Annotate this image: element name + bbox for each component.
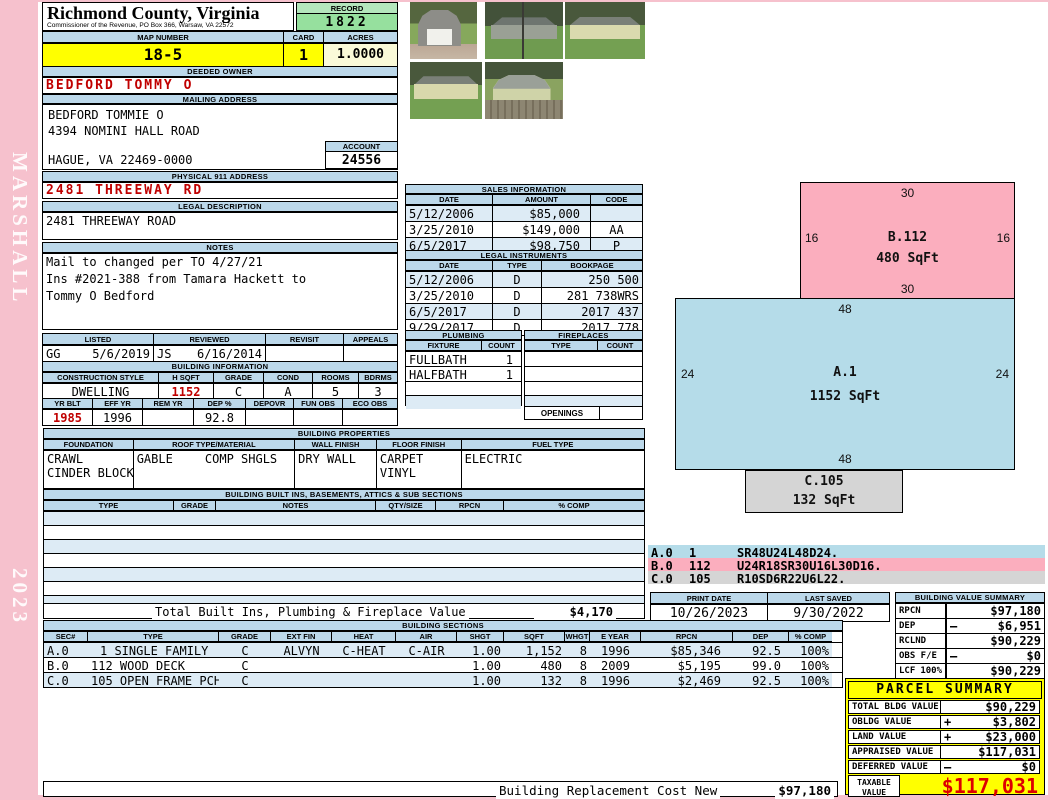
empty-row (406, 396, 521, 409)
grade-value: C (214, 384, 264, 398)
legend-path: SR48U24L48D24. (734, 545, 841, 558)
map-number-value: 18-5 (43, 44, 284, 66)
yrblt-label: YR BLT (43, 399, 93, 409)
effyr-value: 1996 (93, 410, 143, 425)
parcel-row: TOTAL BLDG VALUE $90,229 (848, 700, 1042, 714)
shed-roof (493, 75, 551, 89)
sales-col-code: CODE (591, 195, 642, 205)
bdrms-label: BDRMS (359, 373, 397, 383)
plumbing-row: FULLBATH 1 (406, 352, 521, 367)
parcel-label: DEFERRED VALUE (848, 760, 941, 774)
fireplaces-title: FIREPLACES (524, 330, 643, 340)
sketch-section-c: C.105 132 SqFt (745, 470, 903, 513)
style-value: DWELLING (43, 384, 159, 398)
instr-type: D (493, 304, 542, 319)
fuel-value: ELECTRIC (462, 451, 644, 488)
account-value: 24556 (325, 152, 398, 169)
last-saved-label: LAST SAVED (768, 593, 889, 604)
built-ins-table: TYPE GRADE NOTES QTY/SIZE RPCN % COMP (43, 500, 645, 609)
sale-code: AA (591, 222, 642, 237)
instr-date: 5/12/2006 (406, 272, 493, 287)
appeals-label: APPEALS (344, 334, 397, 345)
openings-label: OPENINGS (524, 406, 600, 420)
empty-row (44, 568, 644, 582)
deeded-owner-value: BEDFORD TOMMY O (42, 77, 398, 94)
summary-row: RCLND $90,229 (896, 634, 1044, 649)
legend-code: 105 (686, 571, 734, 584)
fixture-value: FULLBATH (406, 352, 482, 366)
assessment-record-page: { "sidebar": { "company": "MARSHALL", "y… (0, 0, 1050, 800)
fireplaces-table: TYPE COUNT (524, 340, 643, 406)
listed-value: GG 5/6/2019 (43, 346, 154, 362)
empty-row (44, 582, 644, 596)
parcel-value: $0 (1022, 760, 1036, 774)
roof-label: ROOF TYPE/MATERIAL (134, 440, 295, 450)
house-body (414, 84, 477, 99)
plumbing-table: FIXTURE COUNT FULLBATH 1 HALFBATH 1 (405, 340, 522, 406)
count-value: 1 (482, 352, 521, 366)
instr-type: D (493, 272, 542, 287)
physical-address-label: PHYSICAL 911 ADDRESS (42, 171, 398, 182)
revisit-value (266, 346, 344, 362)
notes-box: Mail to changed per TO 4/27/21 Ins #2021… (42, 253, 398, 330)
yrblt-value: 1985 (43, 410, 93, 425)
sketch-legend: A.0 1 SR48U24L48D24. B.0 112 U24R18SR30U… (648, 545, 1045, 584)
instr-date: 3/25/2010 (406, 288, 493, 303)
dep-value: 92.8 (194, 410, 246, 425)
funobs-value (294, 410, 343, 425)
summary-row: DEP – $6,951 (896, 619, 1044, 634)
mail-street: 4394 NOMINI HALL ROAD (45, 123, 203, 139)
rooms-label: ROOMS (313, 373, 359, 383)
summary-op: – (950, 649, 957, 663)
built-ins-total-row: Total Built Ins, Plumbing & Fireplace Va… (43, 603, 645, 619)
built-ins-total-value: $4,170 (534, 604, 616, 620)
dim-label: 16 (805, 231, 818, 245)
sketch-section-id: C.105 (804, 474, 843, 489)
legend-path: R10SD6R22U6L22. (734, 571, 848, 584)
foundation-line: CINDER BLOCK (47, 466, 130, 480)
legend-row: B.0 112 U24R18SR30U16L30D16. (648, 558, 1045, 571)
utility-pole (522, 2, 524, 59)
mailing-address-box: BEDFORD TOMMIE O 4394 NOMINI HALL ROAD H… (42, 104, 398, 170)
dim-label: 16 (997, 231, 1010, 245)
reviewed-date: 6/16/2014 (197, 347, 262, 361)
sale-code (591, 206, 642, 221)
bs-col: DEP (733, 632, 789, 642)
instr-type: D (493, 288, 542, 303)
cond-value: A (264, 384, 313, 398)
sketch-section-a: 48 24 A.1 24 1152 SqFt 48 (675, 298, 1015, 470)
bs-col: TYPE (88, 632, 219, 642)
instrument-row: 5/12/2006 D 250 500 (406, 272, 642, 288)
building-section-row: B.0 112 WOOD DECK C 1.00 480 8 2009 $5,1… (44, 658, 842, 673)
cond-label: COND (264, 373, 313, 383)
photo-house-side[interactable] (565, 2, 645, 59)
sales-row: 5/12/2006 $85,000 (406, 206, 642, 222)
parcel-value-cell: $117,031 (941, 745, 1040, 759)
fireplace-count-label: COUNT (598, 341, 642, 351)
summary-label: DEP (899, 621, 915, 631)
building-properties-title: BUILDING PROPERTIES (43, 428, 645, 439)
bs-col: WHGT (565, 632, 590, 642)
physical-address-value: 2481 THREEWAY RD (42, 182, 398, 199)
building-section-row: C.0 105 OPEN FRAME PCH C 1.00 132 8 1996… (44, 673, 842, 687)
taxable-row: TAXABLE VALUE $117,031 (848, 775, 1042, 798)
parcel-op: + (944, 715, 951, 729)
summary-label: RPCN (899, 606, 921, 616)
built-ins-title: BUILDING BUILT INS, BASEMENTS, ATTICS & … (43, 489, 645, 500)
sales-row: 3/25/2010 $149,000 AA (406, 222, 642, 238)
dim-label: 48 (838, 302, 851, 316)
record-label: RECORD (296, 2, 398, 14)
taxable-label: TAXABLE VALUE (848, 775, 900, 797)
funobs-label: FUN OBS (294, 399, 343, 409)
reviewed-label: REVIEWED (154, 334, 266, 345)
parcel-value: $90,229 (985, 700, 1036, 714)
parcel-label: OBLDG VALUE (848, 715, 941, 729)
fixture-label: FIXTURE (406, 341, 482, 351)
summary-row: LCF 100% $90,229 (896, 664, 1044, 678)
sale-date: 5/12/2006 (406, 206, 493, 221)
builtins-col-comp: % COMP (504, 501, 644, 511)
building-section-row: A.0 1 SINGLE FAMILY C ALVYN C-HEAT C-AIR… (44, 643, 842, 658)
bs-col: EXT FIN (271, 632, 332, 642)
sketch-area: 30 16 B.112 16 480 SqFt 30 48 24 A.1 24 … (658, 2, 1048, 542)
replacement-cost-row: Building Replacement Cost New $97,180 (43, 781, 838, 797)
built-ins-total-label: Total Built Ins, Plumbing & Fireplace Va… (152, 604, 469, 620)
sales-col-amount: AMOUNT (493, 195, 591, 205)
bdrms-value: 3 (359, 384, 397, 398)
notes-line: Tommy O Bedford (43, 288, 397, 305)
foundation-line: CRAWL (47, 452, 130, 466)
instrument-row: 3/25/2010 D 281 738WRS (406, 288, 642, 304)
sketch-section-b: 30 16 B.112 16 480 SqFt 30 (800, 182, 1015, 299)
garage-door (427, 29, 453, 45)
deeded-owner-label: DEEDED OWNER (42, 66, 398, 77)
ecoobs-label: ECO OBS (343, 399, 397, 409)
photo-house-rear[interactable] (410, 62, 482, 119)
map-number-label: MAP NUMBER (43, 32, 284, 43)
roof-type: GABLE (137, 452, 173, 466)
listed-by: GG (46, 347, 60, 361)
record-box: RECORD 1822 (296, 2, 398, 31)
bs-col: HEAT (332, 632, 396, 642)
parcel-row: APPRAISED VALUE $117,031 (848, 745, 1042, 759)
parcel-row: DEFERRED VALUE – $0 (848, 760, 1042, 774)
instr-col-date: DATE (406, 261, 493, 271)
parcel-value-cell: + $3,802 (941, 715, 1040, 729)
sidebar: MARSHALL 2023 (0, 0, 38, 800)
value-summary-table: RPCN $97,180 DEP – $6,951 RCLND (895, 603, 1045, 679)
year-watermark: 2023 (7, 568, 32, 626)
empty-row (525, 382, 642, 396)
remyr-value (143, 410, 194, 425)
last-saved-value: 9/30/2022 (768, 605, 889, 621)
dim-label: 24 (681, 367, 694, 381)
sketch-section-id: B.112 (888, 230, 927, 245)
building-info-title: BUILDING INFORMATION (42, 361, 398, 372)
legend-sec: B.0 (648, 558, 686, 571)
bs-col: SEC# (44, 632, 88, 642)
sketch-section-sqft: 132 SqFt (793, 493, 856, 508)
notes-line: Ins #2021-388 from Tamara Hackett to (43, 271, 397, 288)
summary-label: RCLND (899, 636, 926, 646)
instruments-title: LEGAL INSTRUMENTS (405, 250, 643, 260)
hsqft-label: H SQFT (159, 373, 214, 383)
empty-row (44, 540, 644, 554)
summary-value: $97,180 (990, 604, 1041, 618)
empty-row (525, 352, 642, 367)
building-sections-table: SEC# TYPE GRADE EXT FIN HEAT AIR SHGT SQ… (43, 631, 843, 688)
wall-label: WALL FINISH (295, 440, 377, 450)
instr-bookpage: 281 738WRS (542, 288, 642, 303)
taxable-value: $117,031 (900, 775, 1040, 798)
mail-name: BEDFORD TOMMIE O (45, 107, 167, 123)
floor-line: VINYL (380, 466, 458, 480)
hsqft-value: 1152 (159, 384, 214, 398)
dim-label: 48 (838, 452, 851, 466)
sketch-section-sqft: 480 SqFt (876, 251, 939, 266)
record-card: Richmond County, Virginia Commissioner o… (38, 2, 1048, 795)
parcel-value: $3,802 (993, 715, 1036, 729)
print-date-value: 10/26/2023 (651, 605, 768, 621)
dim-label: 30 (901, 282, 914, 296)
listed-date: 5/6/2019 (92, 347, 150, 361)
sales-title: SALES INFORMATION (405, 184, 643, 194)
instruments-table: DATE TYPE BOOKPAGE 5/12/2006 D 250 500 3… (405, 260, 643, 336)
openings-value (599, 406, 643, 420)
instr-col-bookpage: BOOKPAGE (542, 261, 642, 271)
plumbing-title: PLUMBING (405, 330, 522, 340)
print-date-label: PRINT DATE (651, 593, 768, 604)
legend-row: C.0 105 R10SD6R22U6L22. (648, 571, 1045, 584)
parcel-label: LAND VALUE (848, 730, 941, 744)
building-properties-table: FOUNDATION ROOF TYPE/MATERIAL WALL FINIS… (43, 439, 645, 489)
photo-house-front[interactable] (485, 2, 563, 59)
bs-col: AIR (396, 632, 457, 642)
wood-fence (485, 100, 563, 119)
county-header: Richmond County, Virginia Commissioner o… (42, 2, 294, 31)
replacement-cost-value: $97,180 (775, 782, 834, 799)
parcel-value: $117,031 (978, 745, 1036, 759)
print-info: PRINT DATE LAST SAVED 10/26/2023 9/30/20… (650, 592, 890, 622)
legend-code: 112 (686, 558, 734, 571)
card-label: CARD (284, 32, 324, 43)
notes-line: Mail to changed per TO 4/27/21 (43, 254, 397, 271)
parcel-op: – (944, 760, 951, 774)
effyr-label: EFF YR (93, 399, 143, 409)
parcel-row: OBLDG VALUE + $3,802 (848, 715, 1042, 729)
summary-row: OBS F/E – $0 (896, 649, 1044, 664)
ecoobs-value (343, 410, 397, 425)
builtins-col-grade: GRADE (174, 501, 216, 511)
parcel-label: TOTAL BLDG VALUE (848, 700, 941, 714)
rooms-value: 5 (313, 384, 359, 398)
photo-shed[interactable] (485, 62, 563, 119)
fixture-value: HALFBATH (406, 367, 482, 381)
summary-value: $0 (1027, 649, 1041, 663)
instr-date: 6/5/2017 (406, 304, 493, 319)
building-info-table: CONSTRUCTION STYLE H SQFT GRADE COND ROO… (42, 372, 398, 426)
reviewed-value: JS 6/16/2014 (154, 346, 266, 362)
listed-label: LISTED (43, 334, 154, 345)
dim-label: 24 (996, 367, 1009, 381)
depovr-value (246, 410, 294, 425)
record-value: 1822 (296, 14, 398, 31)
roof-material: COMP SHGLS (205, 452, 291, 466)
legend-row: A.0 1 SR48U24L48D24. (648, 545, 1045, 558)
roof-value: GABLE COMP SHGLS (134, 451, 295, 488)
legal-description-label: LEGAL DESCRIPTION (42, 201, 398, 212)
parcel-row: LAND VALUE + $23,000 (848, 730, 1042, 744)
legend-path: U24R18SR30U16L30D16. (734, 558, 885, 571)
builtins-col-notes: NOTES (216, 501, 376, 511)
summary-label: LCF (899, 666, 915, 676)
bs-col: SQFT (504, 632, 565, 642)
appeals-value (344, 346, 397, 362)
legend-code: 1 (686, 545, 734, 558)
parcel-value-cell: – $0 (941, 760, 1040, 774)
reviewed-by: JS (157, 347, 171, 361)
bs-col: E YEAR (590, 632, 641, 642)
notes-label: NOTES (42, 242, 398, 253)
sketch-section-sqft: 1152 SqFt (810, 389, 880, 404)
sales-col-date: DATE (406, 195, 493, 205)
floor-line: CARPET (380, 452, 458, 466)
account-box: ACCOUNT 24556 (325, 141, 398, 170)
empty-row (44, 554, 644, 568)
mail-city: HAGUE, VA 22469-0000 (45, 152, 196, 168)
fireplace-type-label: TYPE (525, 341, 598, 351)
card-value: 1 (284, 44, 324, 66)
garage-building (418, 10, 461, 46)
summary-pct: 100% (920, 666, 942, 676)
parcel-value-cell: + $23,000 (941, 730, 1040, 744)
mailing-address-label: MAILING ADDRESS (42, 94, 398, 104)
building-sections-title: BUILDING SECTIONS (43, 620, 843, 631)
bs-col: SHGT (457, 632, 504, 642)
bs-col: RPCN (641, 632, 733, 642)
parcel-summary: PARCEL SUMMARY TOTAL BLDG VALUE $90,229 … (845, 678, 1045, 795)
builtins-col-rpcn: RPCN (436, 501, 504, 511)
summary-value: $90,229 (990, 634, 1041, 648)
acres-label: ACRES (324, 32, 397, 43)
foundation-label: FOUNDATION (44, 440, 134, 450)
parcel-summary-title: PARCEL SUMMARY (848, 681, 1042, 699)
remyr-label: REM YR (143, 399, 194, 409)
parcel-value: $23,000 (985, 730, 1036, 744)
grade-label: GRADE (214, 373, 264, 383)
sale-amount: $149,000 (493, 222, 591, 237)
fuel-label: FUEL TYPE (462, 440, 644, 450)
value-summary-title: BUILDING VALUE SUMMARY (895, 592, 1045, 603)
replacement-cost-label: Building Replacement Cost New (496, 782, 720, 799)
builtins-col-qty: QTY/SIZE (376, 501, 436, 511)
style-label: CONSTRUCTION STYLE (43, 373, 159, 383)
revisit-label: REVISIT (266, 334, 344, 345)
house-body (570, 25, 640, 39)
sketch-section-id: A.1 (833, 365, 856, 380)
empty-row (44, 526, 644, 540)
instrument-row: 6/5/2017 D 2017 437 (406, 304, 642, 320)
commissioner-subtitle: Commissioner of the Revenue, PO Box 366,… (47, 22, 289, 29)
summary-value: $90,229 (990, 664, 1041, 678)
summary-value: $6,951 (998, 619, 1041, 633)
sale-date: 3/25/2010 (406, 222, 493, 237)
dep-label: DEP % (194, 399, 246, 409)
photo-garage[interactable] (410, 2, 477, 59)
dim-label: 30 (901, 186, 914, 200)
sale-amount: $85,000 (493, 206, 591, 221)
parcel-label: APPRAISED VALUE (848, 745, 941, 759)
floor-label: FLOOR FINISH (377, 440, 462, 450)
legal-description-value: 2481 THREEWAY ROAD (42, 212, 398, 240)
plumbing-row: HALFBATH 1 (406, 367, 521, 382)
summary-label: OBS F/E (899, 651, 937, 661)
acres-value: 1.0000 (324, 44, 397, 66)
legend-sec: A.0 (648, 545, 686, 558)
vendor-watermark: MARSHALL (7, 152, 32, 305)
bs-col: GRADE (219, 632, 271, 642)
builtins-col-type: TYPE (44, 501, 174, 511)
parcel-op: + (944, 730, 951, 744)
empty-row (525, 367, 642, 382)
review-table: LISTED REVIEWED REVISIT APPEALS GG 5/6/2… (42, 333, 398, 363)
bs-col: % COMP (789, 632, 832, 642)
instr-bookpage: 2017 437 (542, 304, 642, 319)
depovr-label: DEPOVR (246, 399, 294, 409)
instr-col-type: TYPE (493, 261, 542, 271)
parcel-value-cell: $90,229 (941, 700, 1040, 714)
empty-row (406, 382, 521, 396)
floor-value: CARPET VINYL (377, 451, 462, 488)
sales-table: DATE AMOUNT CODE 5/12/2006 $85,000 3/25/… (405, 194, 643, 254)
summary-row: RPCN $97,180 (896, 604, 1044, 619)
count-label: COUNT (482, 341, 521, 351)
county-title: Richmond County, Virginia (47, 4, 289, 22)
summary-op: – (950, 619, 957, 633)
count-value: 1 (482, 367, 521, 381)
empty-row (44, 512, 644, 526)
foundation-value: CRAWL CINDER BLOCK (44, 451, 134, 488)
house-body (491, 25, 557, 39)
wall-value: DRY WALL (295, 451, 377, 488)
instr-bookpage: 250 500 (542, 272, 642, 287)
account-label: ACCOUNT (325, 141, 398, 152)
legend-sec: C.0 (648, 571, 686, 584)
map-card-acres: MAP NUMBER CARD ACRES 18-5 1 1.0000 (42, 31, 398, 67)
